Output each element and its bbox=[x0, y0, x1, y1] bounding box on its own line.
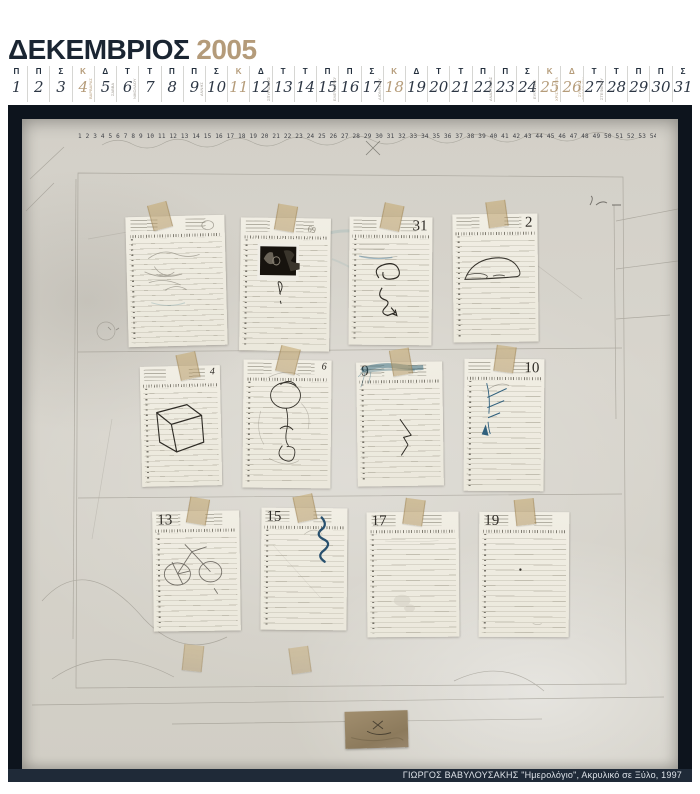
patch-scribble-icon bbox=[345, 710, 409, 749]
diary-page-10: 10 bbox=[464, 359, 545, 492]
figure-doodle-icon bbox=[242, 360, 331, 489]
day-cell-23: Π23 bbox=[495, 66, 517, 102]
day-number: 28 bbox=[606, 76, 627, 98]
weekday-letter: Κ bbox=[228, 67, 249, 76]
tape-strip bbox=[389, 347, 413, 376]
diary-page-a bbox=[125, 215, 227, 348]
day-cell-19: Δ19 bbox=[406, 66, 428, 102]
day-cell-21: Τ21 bbox=[450, 66, 472, 102]
weekday-letter: Π bbox=[650, 67, 671, 76]
artwork-frame: 1 2 3 4 5 6 7 8 9 10 11 12 13 14 15 16 1… bbox=[8, 105, 692, 782]
day-number: 1 bbox=[6, 76, 27, 98]
day-cell-5: Δ5ΣΑΒΒΑ bbox=[95, 66, 117, 102]
tape-strip bbox=[185, 496, 209, 525]
blank19-doodle-icon bbox=[479, 512, 570, 637]
day-cell-8: Π8 bbox=[162, 66, 184, 102]
calendar-strip: Π1Π2Σ3Κ4ΒΑΡΒΑΡΑΣΔ5ΣΑΒΒΑΤ6ΝΙΚΟΛΑΟΥΤ7Π8Π9Α… bbox=[6, 66, 694, 102]
weekday-letter: Κ bbox=[384, 67, 405, 76]
day-cell-12: Δ12ΣΠΥΡΙΔΩΝΟΣ bbox=[250, 66, 272, 102]
day-cell-1: Π1 bbox=[6, 66, 28, 102]
tape-strip bbox=[485, 200, 508, 229]
weekday-letter: Κ bbox=[539, 67, 560, 76]
bicycle-doodle-icon bbox=[152, 510, 241, 631]
day-number: 30 bbox=[650, 76, 671, 98]
weekday-letter: Σ bbox=[673, 67, 694, 76]
nameday-label: ΕΛΕΥΘΕΡΙΟΥ bbox=[333, 77, 338, 101]
day-cell-29: Π29 bbox=[628, 66, 650, 102]
day-number: 29 bbox=[628, 76, 649, 98]
smear-doodle-icon bbox=[356, 361, 444, 486]
tape-strip bbox=[288, 646, 311, 675]
weekday-letter: Κ bbox=[73, 67, 94, 76]
day-number: 10 bbox=[206, 76, 227, 98]
diary-page-b: 69 bbox=[239, 217, 331, 351]
day-number: 2 bbox=[28, 76, 49, 98]
weekday-letter: Π bbox=[495, 67, 516, 76]
tape-strip bbox=[493, 345, 516, 374]
weekday-letter: Σ bbox=[362, 67, 383, 76]
nameday-label: ΔΙΟΝΥΣΙΟΥ bbox=[378, 77, 383, 101]
day-cell-16: Π16 bbox=[339, 66, 361, 102]
day-cell-15: Π15ΕΛΕΥΘΕΡΙΟΥ bbox=[317, 66, 339, 102]
day-number: 14 bbox=[295, 76, 316, 98]
diary-page-4: 4 bbox=[140, 365, 222, 487]
nameday-label: ΣΑΒΒΑ bbox=[111, 77, 116, 101]
day-cell-26: Δ26ΣΥΝΑΞΙΣ ΘΕΟΤΟΚΟΥ bbox=[561, 66, 583, 102]
day-number: 18 bbox=[384, 76, 405, 98]
photo-doodle-icon: 69 bbox=[239, 217, 331, 351]
weekday-letter: Δ bbox=[250, 67, 271, 76]
day-cell-6: Τ6ΝΙΚΟΛΑΟΥ bbox=[117, 66, 139, 102]
nameday-label: ΑΝΑΣΤΑΣΙΑΣ bbox=[489, 77, 494, 101]
tape-strip bbox=[514, 498, 537, 526]
weekday-letter: Τ bbox=[117, 67, 138, 76]
calendar-poster: { "header": { "month": "ΔΕΚΕΜΒΡΙΟΣ", "ye… bbox=[0, 0, 700, 794]
day-cell-25: Κ25ΧΡΙΣΤΟΥΓΕΝΝΑ bbox=[539, 66, 561, 102]
diary-page-6: 6 bbox=[242, 360, 331, 489]
day-number: 13 bbox=[273, 76, 294, 98]
diary-page-13: 13 bbox=[152, 510, 241, 631]
weekday-letter: Π bbox=[628, 67, 649, 76]
weekday-letter: Τ bbox=[273, 67, 294, 76]
nameday-label: ΕΥΓΕΝΙΑΣ bbox=[533, 77, 538, 101]
nameday-label: ΣΠΥΡΙΔΩΝΟΣ bbox=[267, 77, 272, 101]
day-number: 11 bbox=[228, 76, 249, 98]
day-number: 31 bbox=[673, 76, 694, 98]
diary-page-31: 31 bbox=[348, 217, 432, 346]
diary-page-17: 17 bbox=[367, 512, 460, 638]
weekday-letter: Π bbox=[184, 67, 205, 76]
day-cell-22: Π22ΑΝΑΣΤΑΣΙΑΣ bbox=[473, 66, 495, 102]
weekday-letter: Σ bbox=[50, 67, 71, 76]
cloud-doodle-icon bbox=[125, 215, 227, 348]
day-cell-18: Κ18 bbox=[384, 66, 406, 102]
day-cell-13: Τ13 bbox=[273, 66, 295, 102]
day-cell-24: Σ24ΕΥΓΕΝΙΑΣ bbox=[517, 66, 539, 102]
weekday-letter: Τ bbox=[428, 67, 449, 76]
day-number: 21 bbox=[450, 76, 471, 98]
diary-page-19: 19 bbox=[479, 512, 570, 637]
nameday-label: ΣΤΕΦΑΝΟΥ bbox=[600, 77, 605, 101]
nameday-label: ΑΝΝΗΣ bbox=[200, 77, 205, 101]
weekday-letter: Τ bbox=[584, 67, 605, 76]
month-name: ΔΕΚΕΜΒΡΙΟΣ bbox=[8, 34, 189, 65]
nameday-label: ΣΥΝΑΞΙΣ ΘΕΟΤΟΚΟΥ bbox=[578, 77, 583, 101]
weekday-letter: Π bbox=[6, 67, 27, 76]
tape-strip bbox=[182, 644, 205, 672]
diary-page-9: 9 bbox=[356, 361, 444, 486]
canvas: 1 2 3 4 5 6 7 8 9 10 11 12 13 14 15 16 1… bbox=[22, 119, 678, 769]
day-cell-10: Σ10 bbox=[206, 66, 228, 102]
year-label: 2005 bbox=[196, 34, 256, 65]
brown-paper-patch bbox=[345, 710, 409, 749]
weekday-letter: Π bbox=[317, 67, 338, 76]
day-number: 8 bbox=[162, 76, 183, 98]
diary-page-2: 2 bbox=[452, 214, 538, 343]
weekday-letter: Τ bbox=[450, 67, 471, 76]
weekday-letter: Δ bbox=[561, 67, 582, 76]
day-number: 16 bbox=[339, 76, 360, 98]
spiral-doodle-icon bbox=[348, 217, 432, 346]
artwork-caption: ΓΙΩΡΓΟΣ ΒΑΒΥΛΟΥΣΑΚΗΣ "Ημερολόγιο", Ακρυλ… bbox=[403, 769, 682, 782]
day-cell-11: Κ11 bbox=[228, 66, 250, 102]
zigzag-doodle-icon bbox=[260, 508, 347, 631]
day-cell-31: Σ31 bbox=[673, 66, 694, 102]
diary-page-15: 15 bbox=[260, 508, 347, 631]
mouse-doodle-icon bbox=[452, 214, 538, 343]
day-number: 23 bbox=[495, 76, 516, 98]
nameday-label: ΒΑΡΒΑΡΑΣ bbox=[89, 77, 94, 101]
blank17-doodle-icon bbox=[367, 512, 460, 638]
weekday-letter: Π bbox=[339, 67, 360, 76]
weekday-letter: Σ bbox=[206, 67, 227, 76]
weekday-letter: Π bbox=[162, 67, 183, 76]
nameday-label: ΧΡΙΣΤΟΥΓΕΝΝΑ bbox=[555, 77, 560, 101]
day-number: 20 bbox=[428, 76, 449, 98]
day-cell-20: Τ20 bbox=[428, 66, 450, 102]
handwritten-number-row: 1 2 3 4 5 6 7 8 9 10 11 12 13 14 15 16 1… bbox=[78, 133, 656, 140]
caption-bar: ΓΙΩΡΓΟΣ ΒΑΒΥΛΟΥΣΑΚΗΣ "Ημερολόγιο", Ακρυλ… bbox=[8, 769, 692, 782]
day-cell-27: Τ27ΣΤΕΦΑΝΟΥ bbox=[584, 66, 606, 102]
bluescribble-doodle-icon bbox=[464, 359, 545, 492]
weekday-letter: Τ bbox=[139, 67, 160, 76]
day-cell-17: Σ17ΔΙΟΝΥΣΙΟΥ bbox=[362, 66, 384, 102]
nameday-label: ΝΙΚΟΛΑΟΥ bbox=[133, 77, 138, 101]
weekday-letter: Σ bbox=[517, 67, 538, 76]
day-cell-30: Π30 bbox=[650, 66, 672, 102]
day-cell-14: Τ14 bbox=[295, 66, 317, 102]
day-cell-7: Τ7 bbox=[139, 66, 161, 102]
day-number: 7 bbox=[139, 76, 160, 98]
day-number: 3 bbox=[50, 76, 71, 98]
cube-doodle-icon bbox=[140, 365, 222, 487]
tape-strip bbox=[402, 498, 425, 527]
weekday-letter: Π bbox=[473, 67, 494, 76]
day-number: 19 bbox=[406, 76, 427, 98]
day-cell-9: Π9ΑΝΝΗΣ bbox=[184, 66, 206, 102]
day-cell-4: Κ4ΒΑΡΒΑΡΑΣ bbox=[73, 66, 95, 102]
page-title: ΔΕΚΕΜΒΡΙΟΣ2005 bbox=[8, 34, 257, 66]
day-cell-2: Π2 bbox=[28, 66, 50, 102]
weekday-letter: Τ bbox=[606, 67, 627, 76]
weekday-letter: Τ bbox=[295, 67, 316, 76]
day-cell-28: Τ28 bbox=[606, 66, 628, 102]
day-cell-3: Σ3 bbox=[50, 66, 72, 102]
svg-text:69: 69 bbox=[307, 223, 317, 235]
weekday-letter: Δ bbox=[95, 67, 116, 76]
weekday-letter: Δ bbox=[406, 67, 427, 76]
weekday-letter: Π bbox=[28, 67, 49, 76]
